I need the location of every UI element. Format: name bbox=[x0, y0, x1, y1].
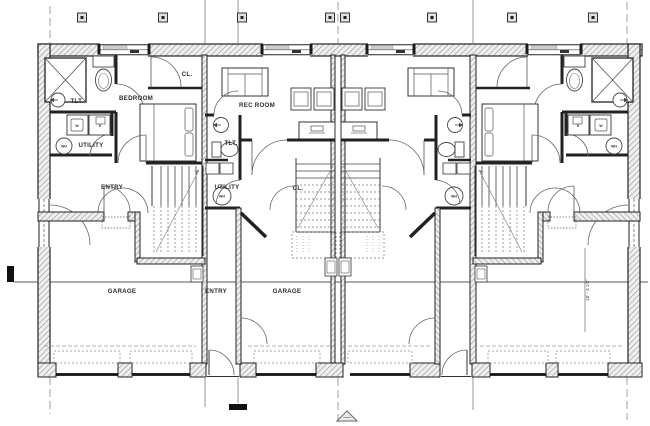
section-cut-tick-bottom bbox=[229, 404, 247, 410]
sheet-annotations bbox=[7, 248, 585, 421]
label-unit2-water-heater: WH bbox=[219, 195, 225, 199]
front-wall-piers bbox=[38, 363, 642, 377]
building-envelope bbox=[37, 43, 643, 377]
label-unit1-toilet: TLT. bbox=[71, 98, 84, 105]
label-unit1-bedroom: BEDROOM bbox=[119, 95, 153, 102]
column-markers bbox=[78, 13, 598, 22]
elevation-marker-triangle bbox=[337, 411, 357, 421]
right-wall-window bbox=[627, 199, 642, 247]
label-unit1-water-heater: WH bbox=[61, 145, 67, 149]
label-unit1-garage: GARAGE bbox=[108, 288, 137, 295]
floor-plan-drawing: TLT. BEDROOM CL. UTILITY ENTRY GARAGE RE… bbox=[0, 0, 650, 426]
floor-plan-sheet: TLT. BEDROOM CL. UTILITY ENTRY GARAGE RE… bbox=[0, 0, 650, 426]
left-wall-window bbox=[37, 199, 52, 247]
unit-3-interior bbox=[339, 68, 471, 375]
label-unit3-water-heater: WH bbox=[451, 195, 457, 199]
label-unit4-water-heater: WH bbox=[611, 145, 617, 149]
section-cut-tick-left bbox=[7, 266, 14, 282]
garage-depth-dimension: 18' - 4 1/2" bbox=[585, 279, 590, 301]
label-unit2-garage: GARAGE bbox=[273, 288, 302, 295]
unit-2-interior bbox=[205, 68, 337, 375]
label-unit2-toilet: TLT. bbox=[225, 140, 238, 147]
label-unit1-closet: CL. bbox=[182, 71, 193, 78]
unit-4-interior bbox=[473, 55, 640, 282]
label-unit1-entry: ENTRY bbox=[101, 184, 124, 191]
label-unit2-entry: ENTRY bbox=[205, 288, 228, 295]
label-unit2-closet: CL. bbox=[293, 185, 304, 192]
unit-1-interior bbox=[38, 55, 205, 282]
label-unit2-utility: UTILITY bbox=[214, 184, 240, 191]
label-unit2-recroom: REC ROOM bbox=[239, 102, 275, 109]
label-unit1-utility: UTILITY bbox=[78, 142, 104, 149]
